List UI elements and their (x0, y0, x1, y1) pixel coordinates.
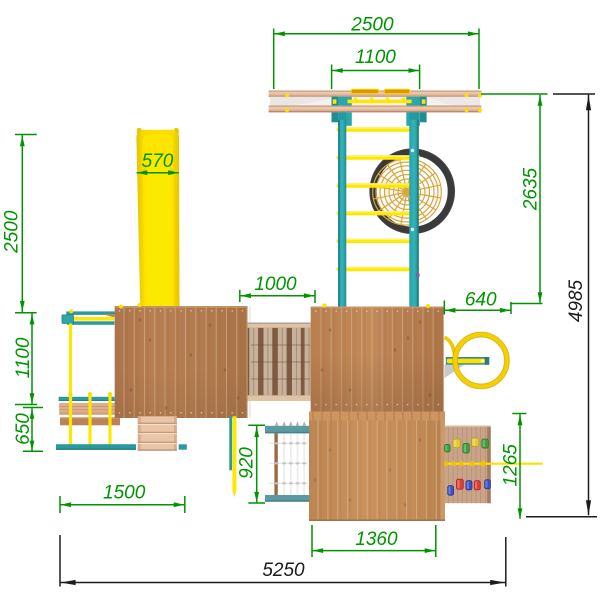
svg-text:1265: 1265 (500, 444, 521, 487)
svg-text:4985: 4985 (566, 279, 587, 322)
svg-text:1360: 1360 (355, 529, 398, 550)
svg-text:2635: 2635 (520, 167, 541, 211)
svg-text:650: 650 (13, 413, 34, 445)
svg-text:1100: 1100 (355, 47, 396, 68)
svg-text:2500: 2500 (1, 210, 22, 254)
svg-text:920: 920 (237, 447, 258, 479)
svg-text:1100: 1100 (13, 337, 34, 378)
svg-text:1000: 1000 (254, 274, 297, 295)
svg-text:2500: 2500 (350, 15, 394, 36)
svg-text:1500: 1500 (103, 483, 146, 504)
svg-text:640: 640 (465, 290, 497, 311)
svg-text:570: 570 (142, 151, 174, 172)
svg-text:5250: 5250 (262, 560, 305, 581)
